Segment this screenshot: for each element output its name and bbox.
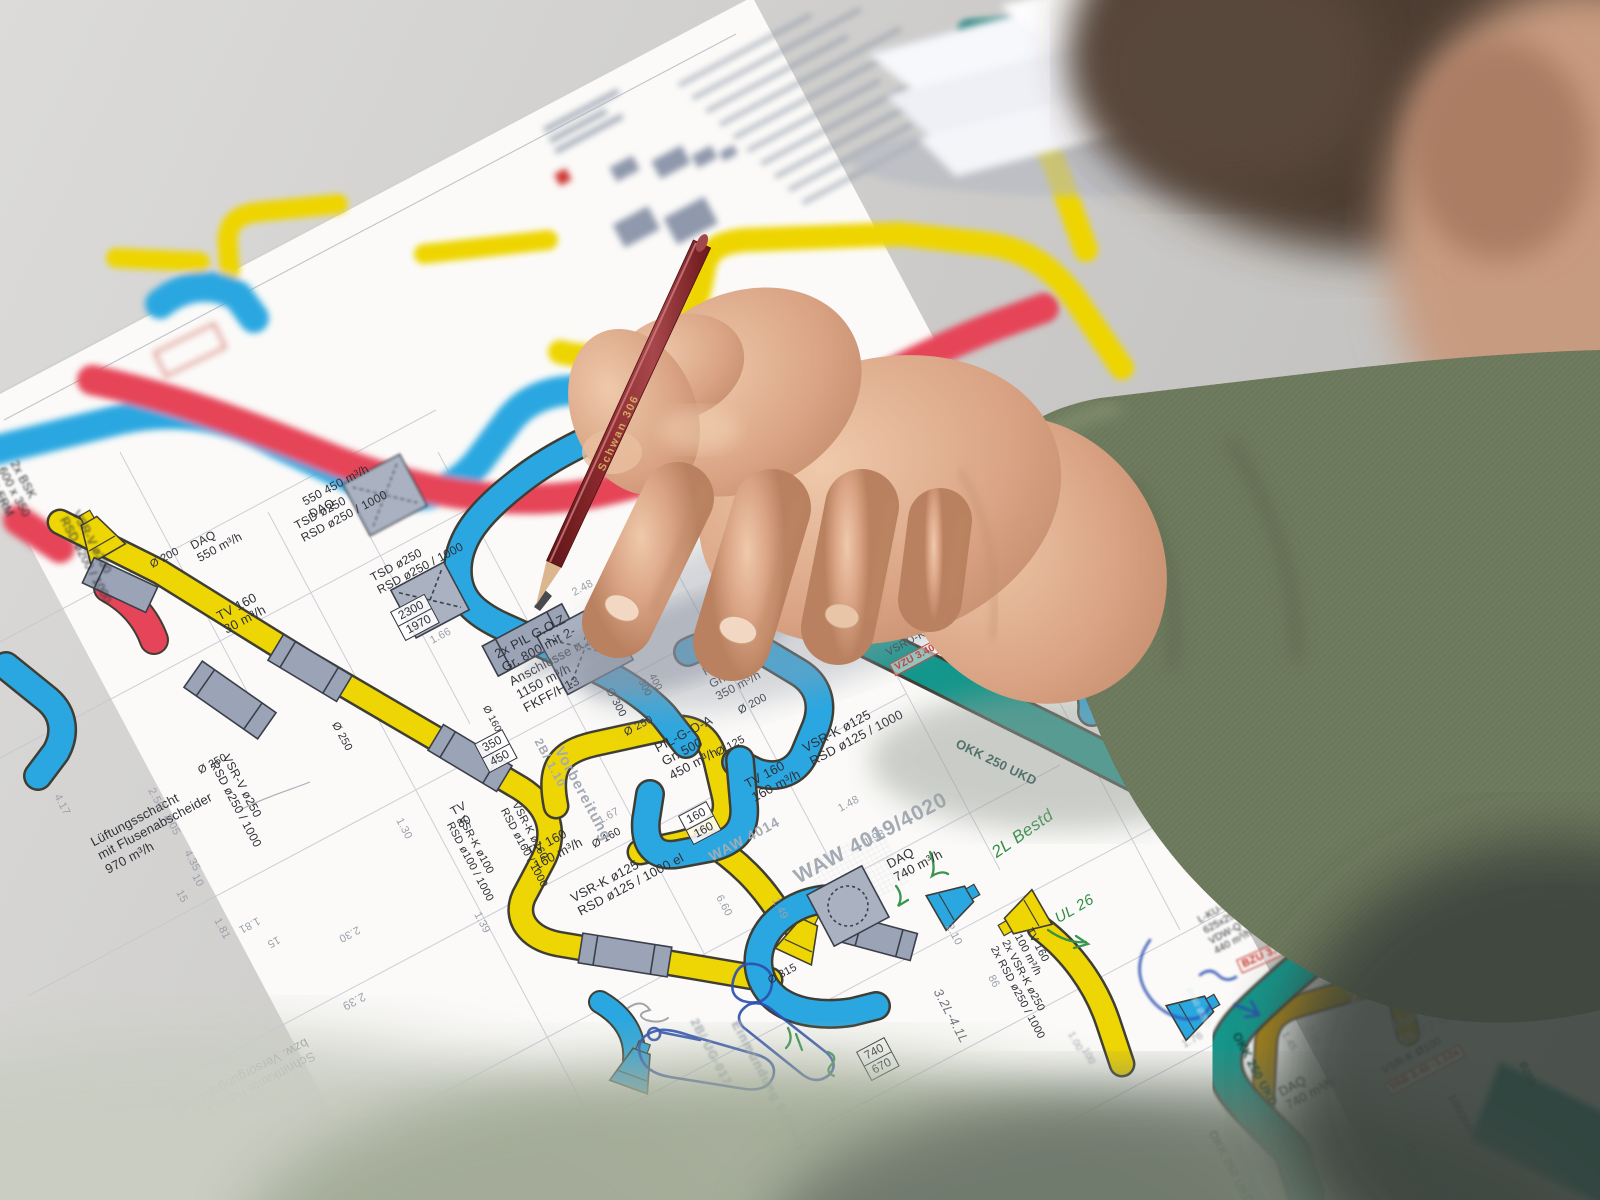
foreground-people	[0, 0, 1600, 1200]
photo-scene: Lüftungsschacht mit Flusenabscheider 970…	[0, 0, 1600, 1200]
